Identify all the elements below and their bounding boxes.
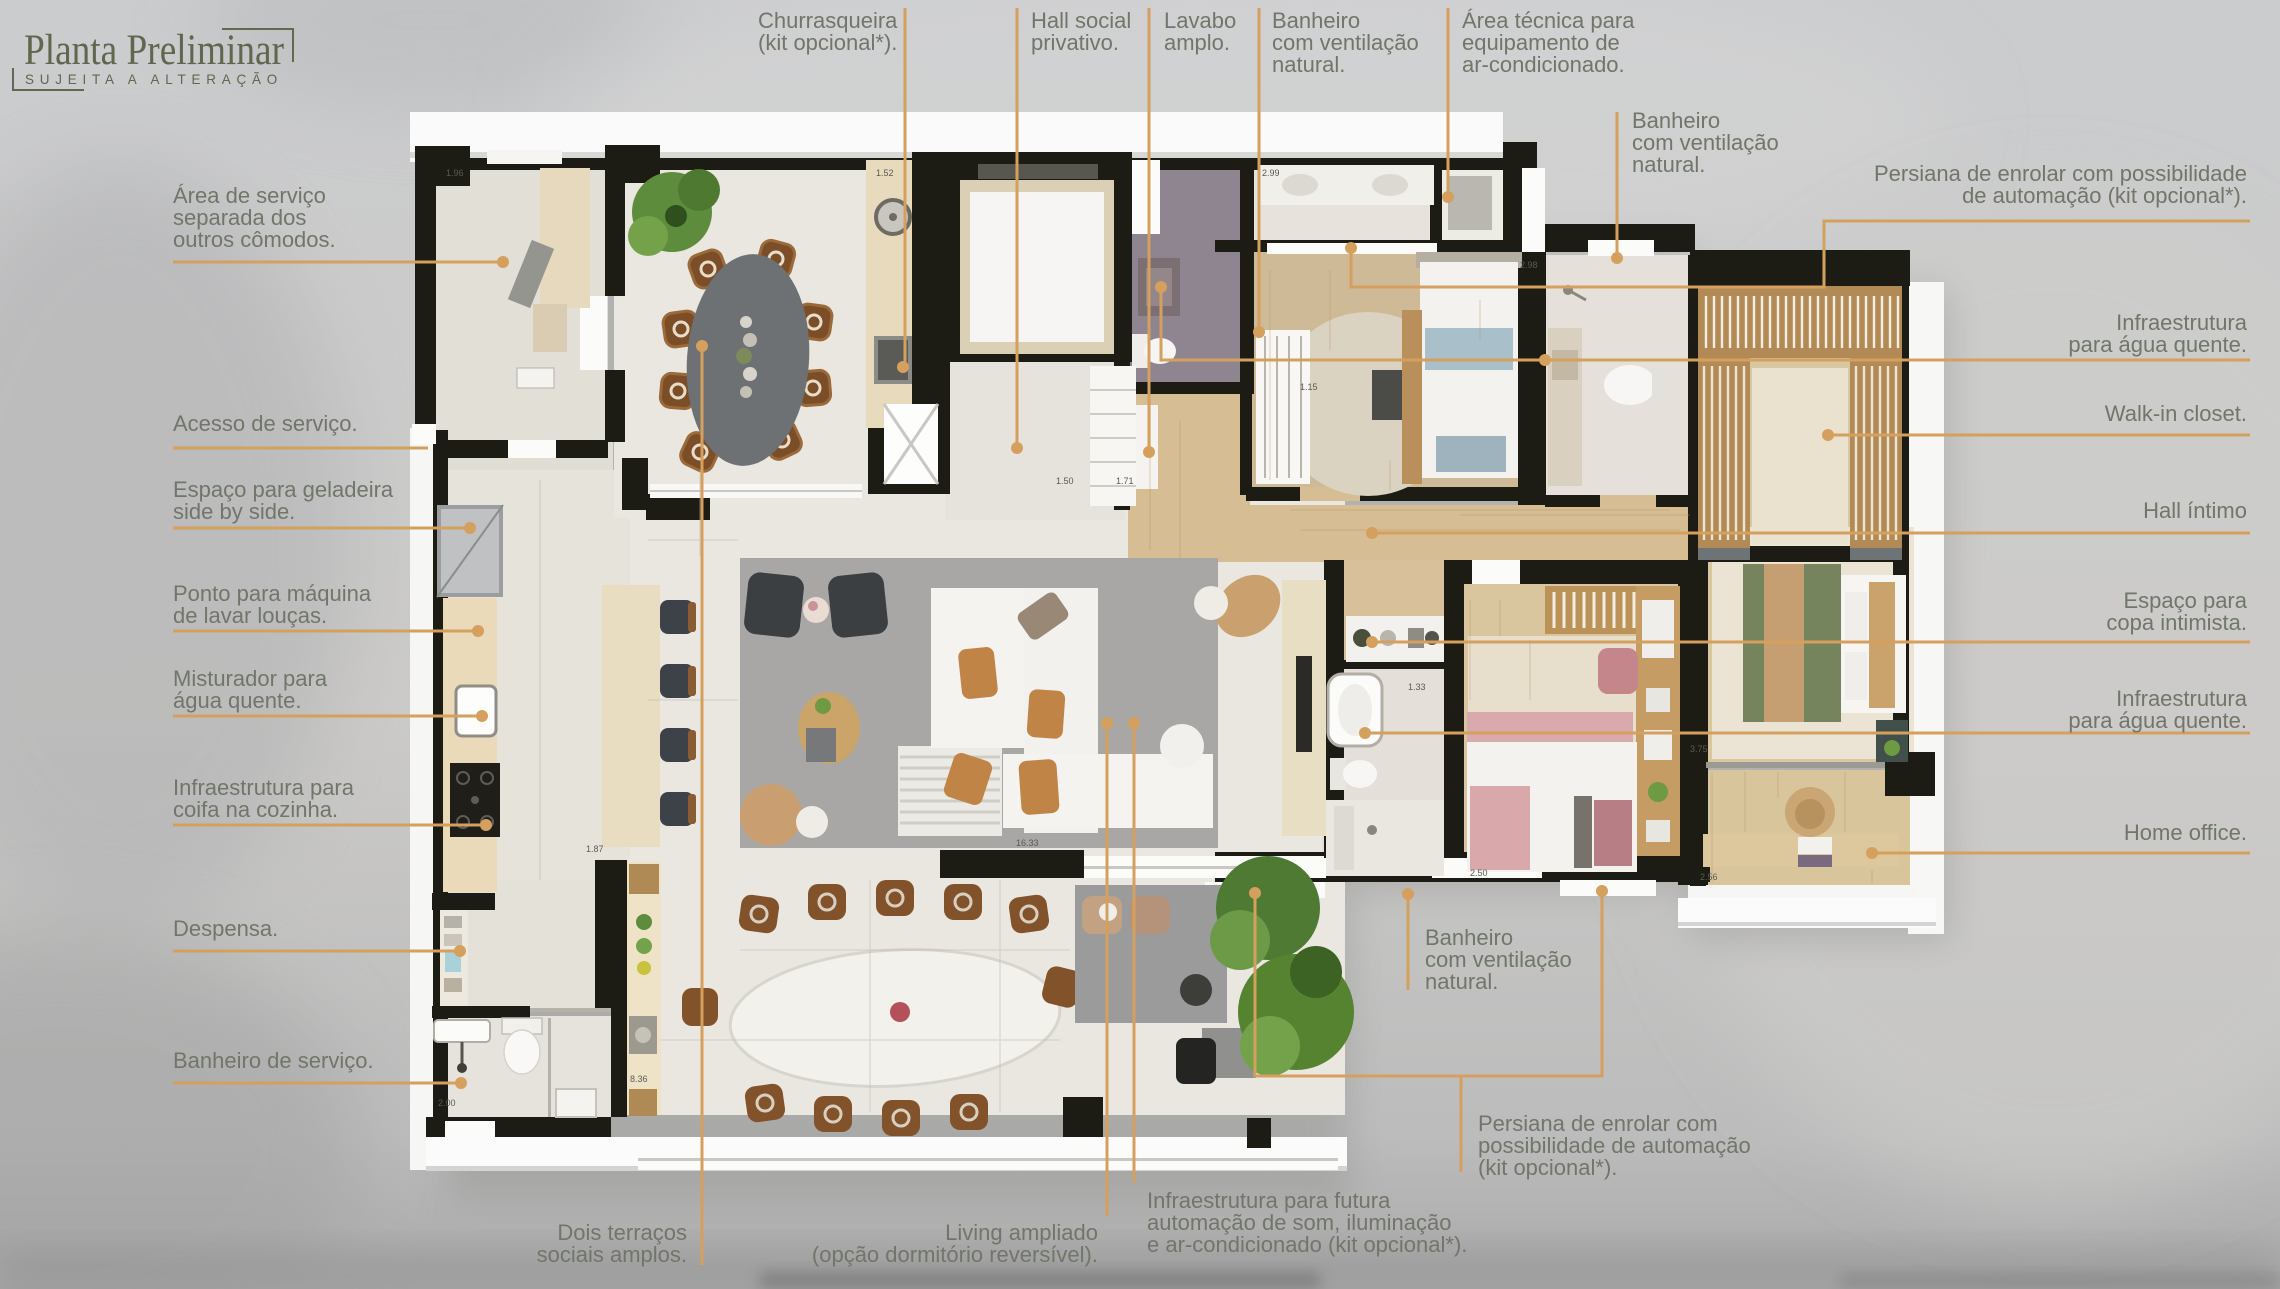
- svg-text:para água quente.: para água quente.: [2068, 708, 2247, 733]
- svg-text:1.71: 1.71: [1116, 476, 1134, 486]
- svg-text:copa intimista.: copa intimista.: [2106, 610, 2247, 635]
- svg-text:1.33: 1.33: [1408, 682, 1426, 692]
- svg-text:natural.: natural.: [1425, 969, 1498, 994]
- svg-text:2.56: 2.56: [1700, 872, 1718, 882]
- svg-text:side by side.: side by side.: [173, 499, 295, 524]
- svg-text:Walk-in closet.: Walk-in closet.: [2105, 401, 2247, 426]
- svg-text:Hall íntimo: Hall íntimo: [2143, 498, 2247, 523]
- svg-text:natural.: natural.: [1632, 152, 1705, 177]
- svg-text:coifa na cozinha.: coifa na cozinha.: [173, 797, 338, 822]
- svg-text:1.50: 1.50: [1056, 476, 1074, 486]
- svg-text:SUJEITA A ALTERAÇÃO: SUJEITA A ALTERAÇÃO: [25, 71, 283, 87]
- svg-text:8.36: 8.36: [630, 1074, 648, 1084]
- svg-text:amplo.: amplo.: [1164, 30, 1230, 55]
- svg-text:1.15: 1.15: [1300, 382, 1318, 392]
- svg-text:ar-condicionado.: ar-condicionado.: [1462, 52, 1625, 77]
- svg-text:2.50: 2.50: [1470, 868, 1488, 878]
- svg-text:2.99: 2.99: [1262, 168, 1280, 178]
- svg-text:outros cômodos.: outros cômodos.: [173, 227, 336, 252]
- svg-text:Home office.: Home office.: [2124, 820, 2247, 845]
- svg-text:de automação (kit opcional*).: de automação (kit opcional*).: [1962, 183, 2247, 208]
- svg-text:(kit opcional*).: (kit opcional*).: [1478, 1155, 1617, 1180]
- svg-text:de lavar louças.: de lavar louças.: [173, 603, 327, 628]
- svg-text:1.52: 1.52: [876, 168, 894, 178]
- svg-text:(kit opcional*).: (kit opcional*).: [758, 30, 897, 55]
- svg-text:água quente.: água quente.: [173, 688, 301, 713]
- svg-text:1.96: 1.96: [446, 168, 464, 178]
- svg-text:para água quente.: para água quente.: [2068, 332, 2247, 357]
- svg-text:2.00: 2.00: [438, 1098, 456, 1108]
- svg-text:natural.: natural.: [1272, 52, 1345, 77]
- svg-text:sociais amplos.: sociais amplos.: [537, 1242, 687, 1267]
- svg-text:16.33: 16.33: [1016, 838, 1039, 848]
- svg-text:Planta Preliminar: Planta Preliminar: [24, 27, 284, 74]
- svg-text:Banheiro de serviço.: Banheiro de serviço.: [173, 1048, 374, 1073]
- svg-text:(opção dormitório reversível).: (opção dormitório reversível).: [812, 1242, 1098, 1267]
- svg-text:Acesso de serviço.: Acesso de serviço.: [173, 411, 358, 436]
- svg-text:2.98: 2.98: [1520, 260, 1538, 270]
- svg-text:e ar-condicionado (kit opciona: e ar-condicionado (kit opcional*).: [1147, 1232, 1467, 1257]
- svg-text:Despensa.: Despensa.: [173, 916, 278, 941]
- svg-text:3.75: 3.75: [1690, 744, 1708, 754]
- svg-text:privativo.: privativo.: [1031, 30, 1119, 55]
- svg-text:1.87: 1.87: [586, 844, 604, 854]
